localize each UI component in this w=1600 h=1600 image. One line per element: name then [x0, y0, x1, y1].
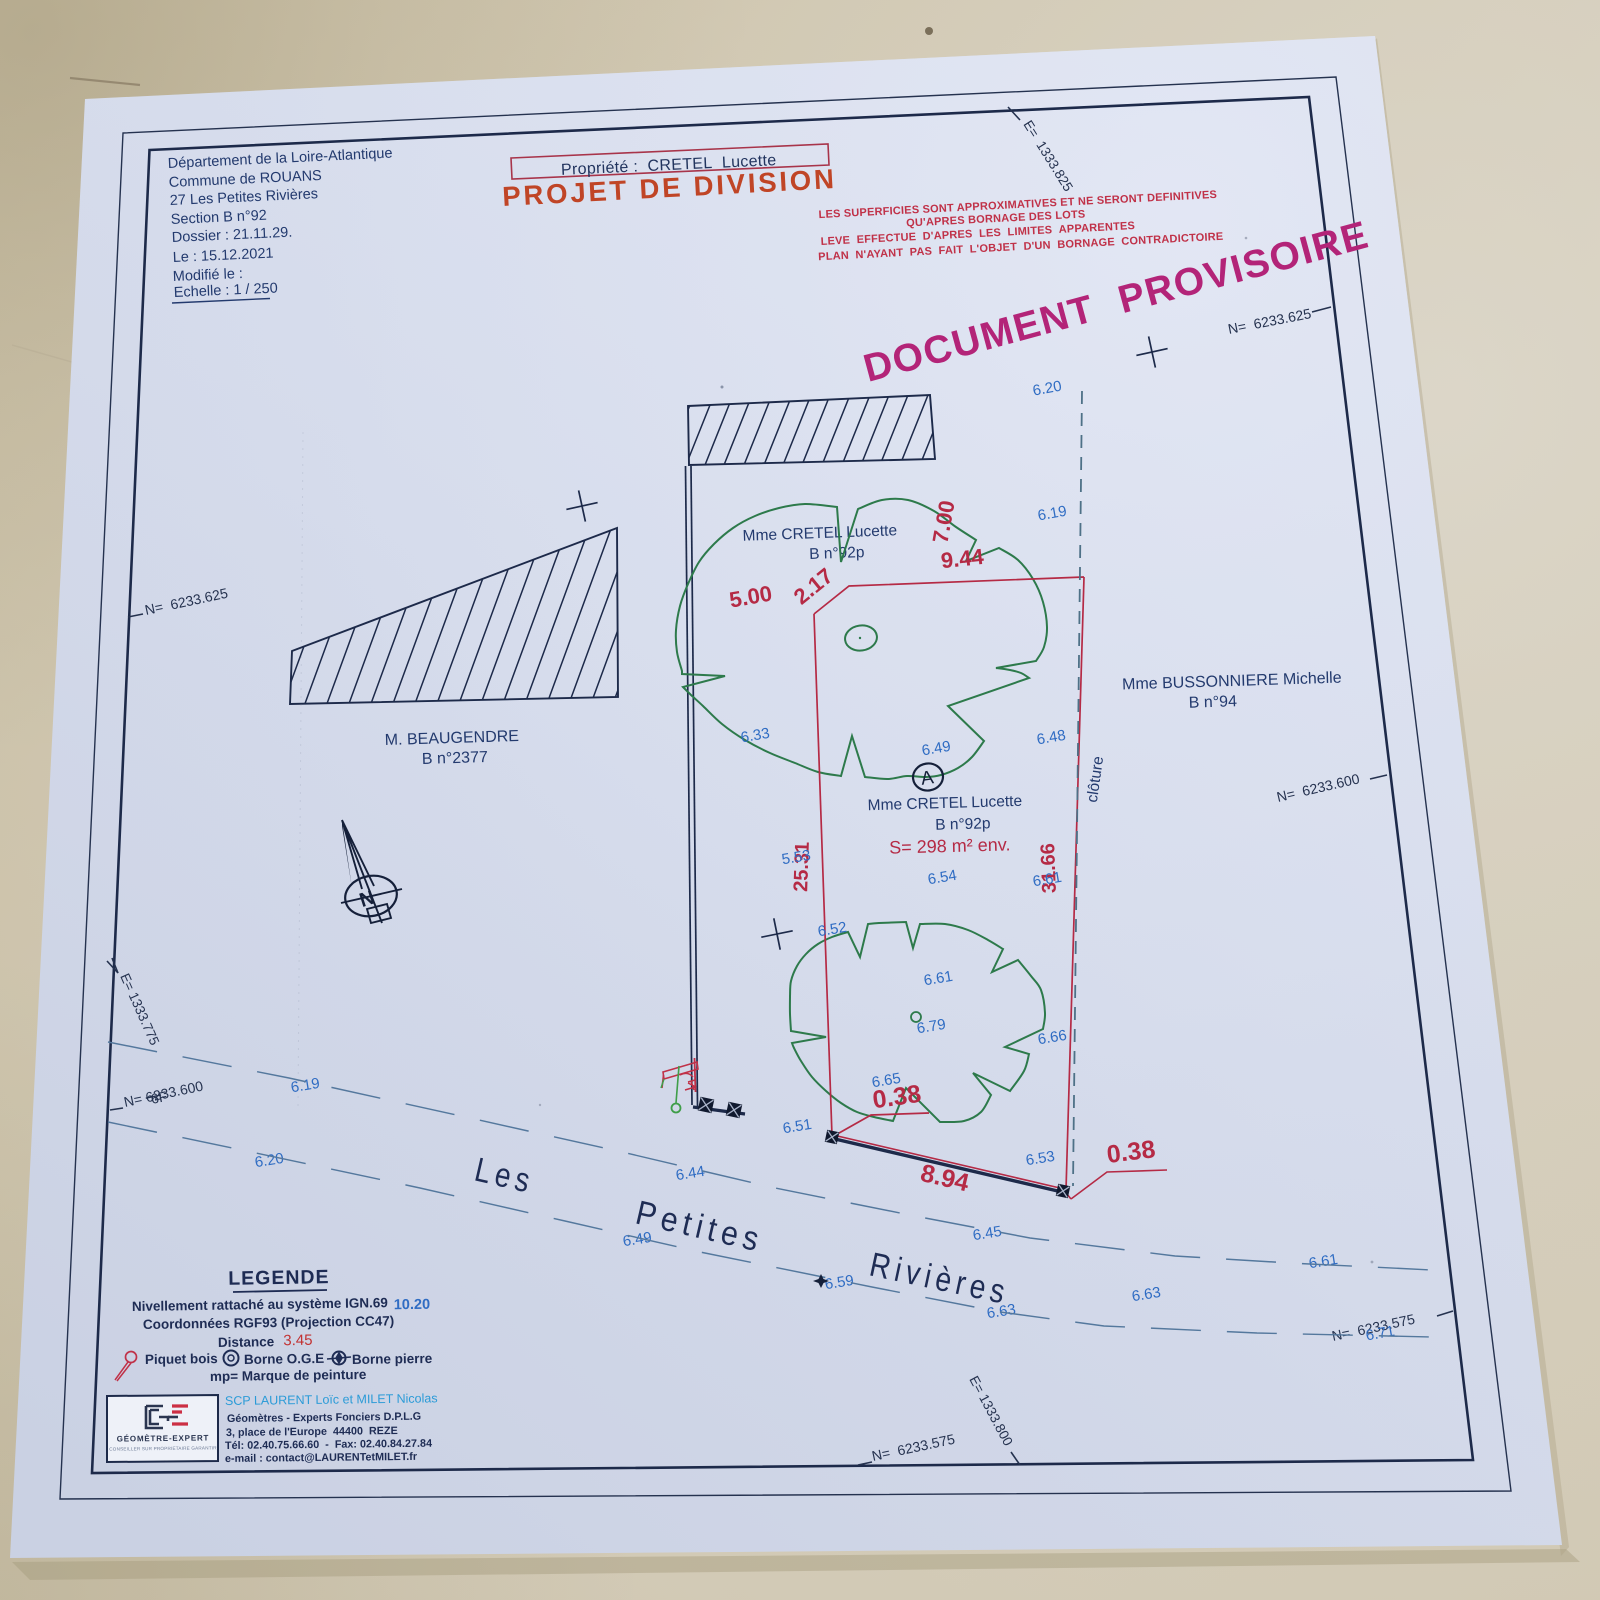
svg-text:Tél: 02.40.75.66.60 - Fax: 0: Tél: 02.40.75.66.60 - Fax: 02.40.84.27.8…: [225, 1438, 432, 1452]
svg-text:3, place de l'Europe 44400 R: 3, place de l'Europe 44400 REZE: [226, 1425, 398, 1439]
svg-text:LEGENDE: LEGENDE: [228, 1266, 330, 1290]
svg-text:Distance: Distance: [218, 1334, 275, 1350]
svg-text:Borne pierre: Borne pierre: [352, 1351, 433, 1367]
svg-text:10.20: 10.20: [394, 1297, 431, 1314]
svg-text:Piquet bois: Piquet bois: [145, 1351, 218, 1367]
svg-text:Borne O.G.E: Borne O.G.E: [244, 1351, 324, 1367]
svg-text:B n°94: B n°94: [1188, 693, 1237, 711]
svg-text:9.44: 9.44: [940, 544, 986, 573]
svg-text:B n°92p: B n°92p: [809, 544, 865, 563]
svg-text:B n°92p: B n°92p: [935, 815, 991, 834]
svg-text:SCP LAURENT Loïc et MILET Nico: SCP LAURENT Loïc et MILET Nicolas: [225, 1391, 438, 1408]
svg-text:Géomètres - Experts Fonciers D: Géomètres - Experts Fonciers D.P.L.G: [227, 1411, 421, 1425]
svg-text:B n°2377: B n°2377: [422, 749, 489, 768]
svg-text:6F: 6F: [149, 1088, 168, 1107]
svg-text:S= 298 m² env.: S= 298 m² env.: [889, 834, 1011, 857]
svg-text:3.45: 3.45: [283, 1332, 312, 1349]
svg-text:0.38: 0.38: [1105, 1135, 1157, 1169]
svg-text:mp= Marque de peinture: mp= Marque de peinture: [210, 1367, 367, 1384]
svg-text:e-mail : contact@LAURENTetMILE: e-mail : contact@LAURENTetMILET.fr: [225, 1451, 418, 1465]
svg-text:GÉOMÈTRE-EXPERT: GÉOMÈTRE-EXPERT: [117, 1432, 210, 1443]
